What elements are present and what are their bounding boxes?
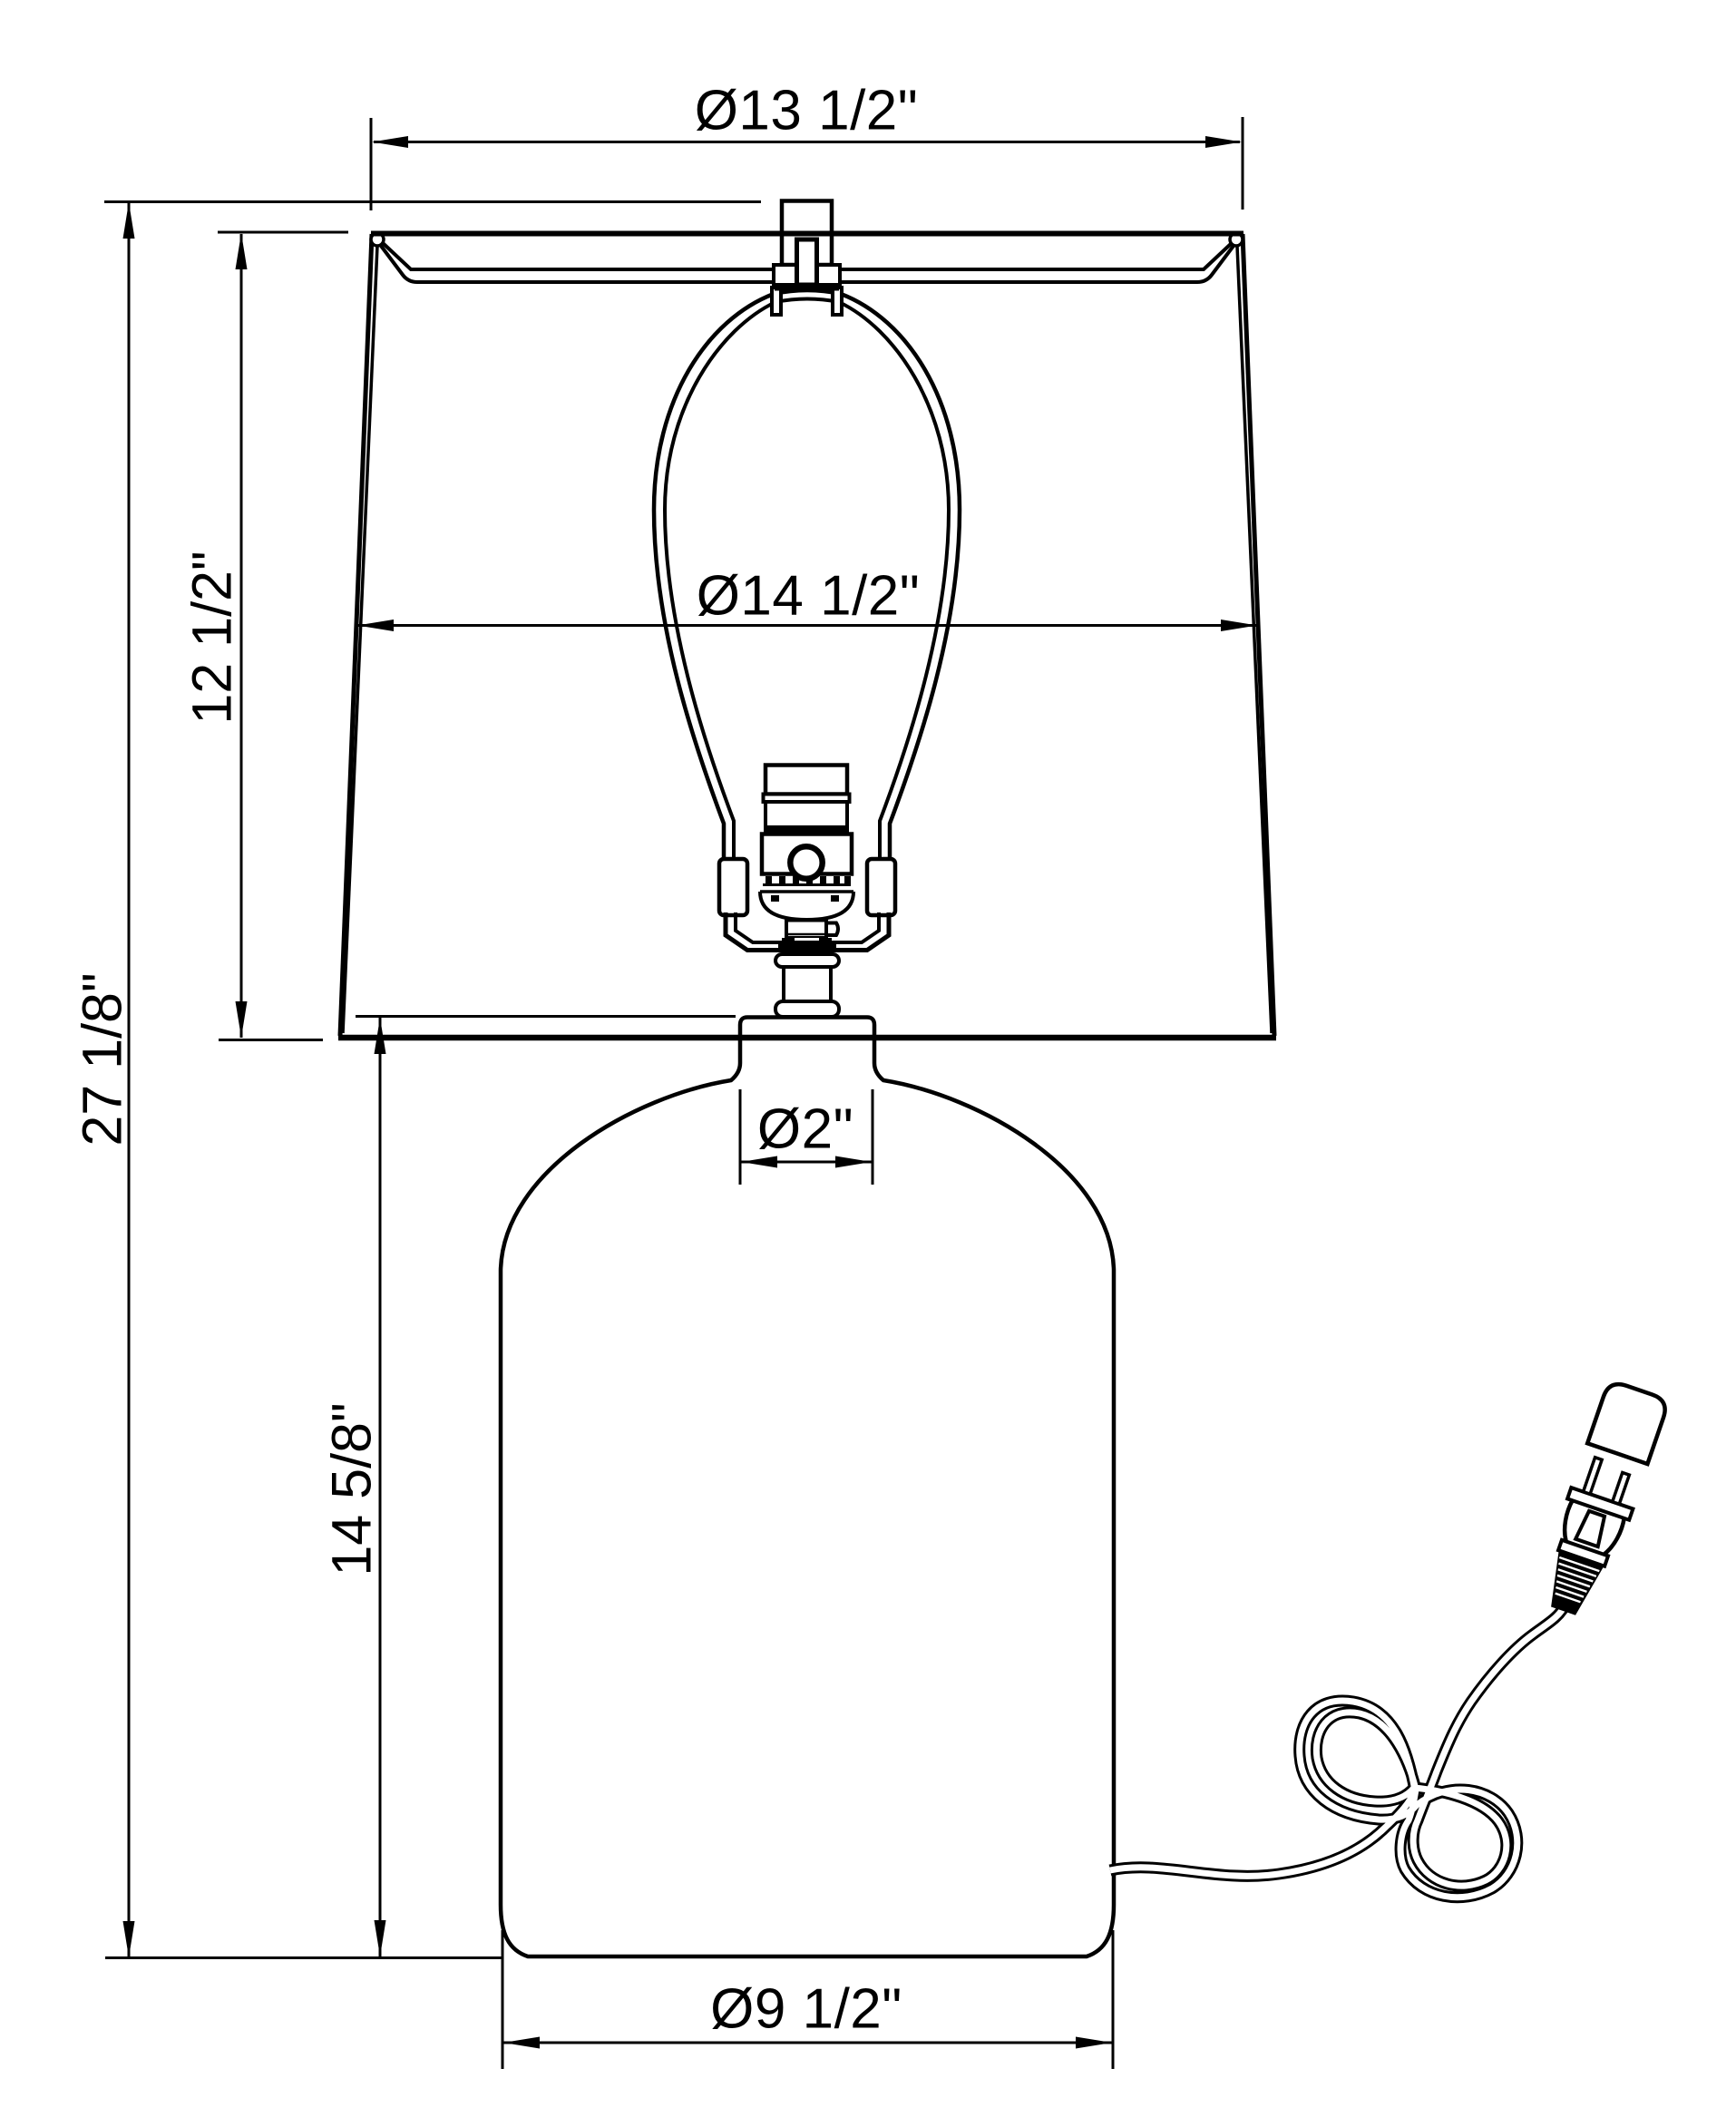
svg-text:Ø2": Ø2" <box>757 1098 853 1161</box>
svg-text:Ø9 1/2": Ø9 1/2" <box>710 1978 902 2041</box>
svg-text:27 1/8": 27 1/8" <box>71 972 132 1146</box>
svg-text:14 5/8": 14 5/8" <box>320 1402 382 1576</box>
svg-text:Ø13 1/2": Ø13 1/2" <box>695 80 919 142</box>
svg-text:12 1/2": 12 1/2" <box>180 551 242 724</box>
svg-text:Ø14 1/2": Ø14 1/2" <box>697 565 921 628</box>
